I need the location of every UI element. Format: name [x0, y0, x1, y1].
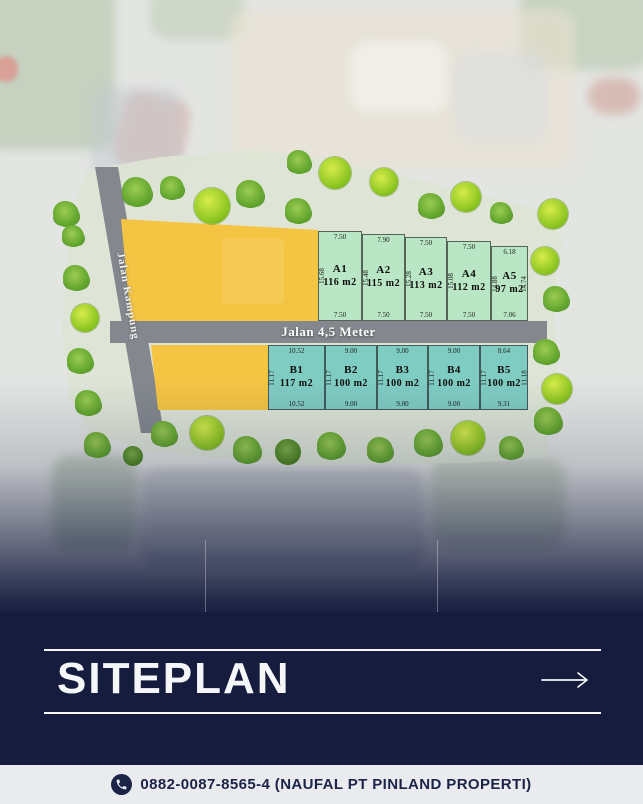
dim-bottom: 7.50 — [334, 311, 346, 319]
divider — [44, 712, 601, 714]
tree-icon — [151, 421, 177, 447]
tree-icon — [531, 247, 559, 275]
page-title: SITEPLAN — [57, 654, 291, 704]
dim-top: 7.90 — [377, 236, 389, 244]
tree-icon — [451, 421, 485, 455]
plot-id: B4 — [437, 364, 471, 378]
plot-b4: 9.009.0011.17B4100 m2 — [428, 345, 480, 410]
plot-a1: 7.507.5015.68A1116 m2 — [318, 231, 362, 321]
dim-side: 11.17 — [325, 370, 333, 386]
plot-area: 100 m2 — [487, 378, 521, 391]
plot-label: A2115 m2 — [367, 264, 400, 290]
dim-top: 9.00 — [448, 347, 460, 355]
plot-area: 100 m2 — [437, 378, 471, 391]
plot-a5: 6.187.0614.8814.74A597 m2 — [491, 246, 528, 321]
siteplan-flyer: Jalan 4,5 Meter Jalan Kampung 7.507.5015… — [0, 0, 643, 804]
tree-icon — [67, 348, 93, 374]
dim-top: 9.00 — [345, 347, 357, 355]
plot-a3: 7.507.5015.28A3113 m2 — [405, 237, 447, 321]
dim-side: 14.88 — [491, 276, 499, 292]
plot-label: B5100 m2 — [487, 364, 521, 390]
dim-side: 11.17 — [268, 370, 276, 386]
dim-side: 11.17 — [377, 370, 385, 386]
tree-icon — [414, 429, 442, 457]
dim-bottom: 7.50 — [377, 311, 389, 319]
plot-a2: 7.907.5015.48A2115 m2 — [362, 234, 405, 321]
plot-label: A1116 m2 — [323, 263, 356, 289]
siteplan-map: Jalan 4,5 Meter Jalan Kampung 7.507.5015… — [0, 0, 643, 622]
tree-icon — [490, 202, 512, 224]
plot-area: 100 m2 — [334, 378, 368, 391]
dim-top: 7.50 — [420, 239, 432, 247]
watermark — [222, 238, 284, 304]
dim-top: 7.50 — [463, 243, 475, 251]
plot-b5: 8.649.3111.1711.18B5100 m2 — [480, 345, 528, 410]
road-internal-label: Jalan 4,5 Meter — [110, 324, 547, 340]
plot-area: 116 m2 — [323, 277, 356, 290]
dim-side: 15.08 — [447, 273, 455, 289]
plot-label: B1117 m2 — [280, 364, 313, 390]
tree-icon — [285, 198, 311, 224]
plot-label: B4100 m2 — [437, 364, 471, 390]
tree-icon — [275, 439, 301, 465]
contact-bar[interactable]: 0882-0087-8565-4 (NAUFAL PT PINLAND PROP… — [0, 765, 643, 804]
plot-b2: 9.009.0011.17B2100 m2 — [325, 345, 377, 410]
frame-line-vertical — [205, 540, 206, 613]
tree-icon — [534, 407, 562, 435]
tree-icon — [84, 432, 110, 458]
tree-icon — [370, 168, 398, 196]
tree-icon — [122, 177, 152, 207]
plot-id: A4 — [452, 268, 485, 282]
dim-bottom: 9.00 — [396, 400, 408, 408]
plot-id: A2 — [367, 264, 400, 278]
plot-label: A4112 m2 — [452, 268, 485, 294]
tree-icon — [451, 182, 481, 212]
dim-top: 7.50 — [334, 233, 346, 241]
plot-area: 117 m2 — [280, 378, 313, 391]
tree-icon — [190, 416, 224, 450]
plot-id: B2 — [334, 364, 368, 378]
tree-icon — [62, 225, 84, 247]
plot-area: 112 m2 — [452, 282, 485, 295]
plot-area: 115 m2 — [367, 278, 400, 291]
plot-id: A3 — [409, 266, 442, 280]
tree-icon — [236, 180, 264, 208]
tree-icon — [319, 157, 351, 189]
dim-top: 8.64 — [498, 347, 510, 355]
tree-icon — [233, 436, 261, 464]
tree-icon — [367, 437, 393, 463]
dim-bottom: 9.31 — [498, 400, 510, 408]
tree-icon — [123, 446, 143, 466]
plot-a4: 7.507.5015.08A4112 m2 — [447, 241, 491, 321]
tree-icon — [63, 265, 89, 291]
phone-icon — [111, 774, 132, 795]
plot-id: B3 — [386, 364, 420, 378]
dim-bottom: 10.52 — [289, 400, 305, 408]
dim-side: 15.48 — [362, 270, 370, 286]
dim-bottom: 9.00 — [345, 400, 357, 408]
tree-icon — [160, 176, 184, 200]
siteplan-footer: SITEPLAN — [0, 612, 643, 765]
frame-line-vertical — [437, 540, 438, 613]
dim-side: 11.17 — [480, 370, 488, 386]
tree-icon — [53, 201, 79, 227]
tree-icon — [538, 199, 568, 229]
tree-icon — [194, 188, 230, 224]
dim-side: 15.68 — [318, 268, 326, 284]
tree-icon — [287, 150, 311, 174]
plot-b1: 10.5210.5211.17B1117 m2 — [268, 345, 325, 410]
dim-bottom: 7.50 — [463, 311, 475, 319]
tree-icon — [542, 374, 572, 404]
dim-top: 6.18 — [503, 248, 515, 256]
tree-icon — [71, 304, 99, 332]
plot-id: B5 — [487, 364, 521, 378]
tree-icon — [533, 339, 559, 365]
divider — [44, 649, 601, 651]
dim-bottom: 9.00 — [448, 400, 460, 408]
plot-label: A3113 m2 — [409, 266, 442, 292]
dim-side: 15.28 — [405, 271, 413, 287]
plot-b3: 9.009.0011.17B3100 m2 — [377, 345, 428, 410]
tree-icon — [499, 436, 523, 460]
dim-top: 9.00 — [396, 347, 408, 355]
dim-top: 10.52 — [289, 347, 305, 355]
plot-label: B2100 m2 — [334, 364, 368, 390]
plot-id: B1 — [280, 364, 313, 378]
plot-id: A1 — [323, 263, 356, 277]
dim-bottom: 7.06 — [503, 311, 515, 319]
dim-side-right: 14.74 — [520, 276, 528, 292]
dim-bottom: 7.50 — [420, 311, 432, 319]
arrow-right-icon[interactable] — [540, 668, 592, 692]
plot-area: 113 m2 — [409, 280, 442, 293]
tree-icon — [75, 390, 101, 416]
tree-icon — [317, 432, 345, 460]
dim-side-right: 11.18 — [520, 370, 528, 386]
tree-icon — [418, 193, 444, 219]
plot-area: 100 m2 — [386, 378, 420, 391]
plot-label: B3100 m2 — [386, 364, 420, 390]
contact-phone-text: 0882-0087-8565-4 (NAUFAL PT PINLAND PROP… — [140, 776, 531, 793]
dim-side: 11.17 — [428, 370, 436, 386]
tree-icon — [543, 286, 569, 312]
